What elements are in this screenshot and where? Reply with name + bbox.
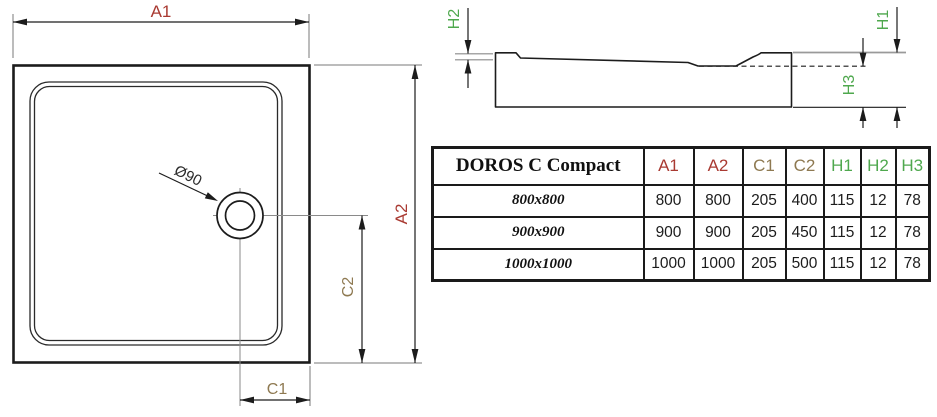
c2-label: C2 (340, 277, 357, 298)
a2-label: A2 (392, 204, 411, 225)
column-header-a1: A1 (644, 148, 694, 185)
value-h1: 115 (824, 217, 861, 249)
column-header-h2: H2 (861, 148, 896, 185)
value-h3: 78 (896, 217, 930, 249)
value-c2: 450 (786, 217, 824, 249)
value-h2: 12 (861, 249, 896, 281)
value-a2: 800 (694, 185, 743, 217)
side-view-drawing: H2 H1 H3 (446, 7, 906, 128)
value-c2: 500 (786, 249, 824, 281)
value-a2: 1000 (694, 249, 743, 281)
value-c1: 205 (743, 217, 786, 249)
h3-label: H3 (841, 75, 858, 96)
h2-arrowheads (465, 40, 472, 74)
technical-drawing-page: A1 Ø90 (0, 0, 937, 417)
table-title: DOROS C Compact (433, 148, 644, 185)
table-header-row: DOROS C Compact A1 A2 C1 C2 H1 H2 H3 (433, 148, 930, 185)
column-header-h1: H1 (824, 148, 861, 185)
column-header-c2: C2 (786, 148, 824, 185)
spec-table: DOROS C Compact A1 A2 C1 C2 H1 H2 H3 800… (431, 146, 931, 282)
value-a2: 900 (694, 217, 743, 249)
h1-label: H1 (875, 10, 892, 31)
table-row: 900x900 900 900 205 450 115 12 78 (433, 217, 930, 249)
value-a1: 800 (644, 185, 694, 217)
value-h1: 115 (824, 249, 861, 281)
table-row: 1000x1000 1000 1000 205 500 115 12 78 (433, 249, 930, 281)
value-a1: 900 (644, 217, 694, 249)
value-h3: 78 (896, 249, 930, 281)
h2-extension-ticks (455, 54, 493, 60)
size-label: 900x900 (433, 217, 644, 249)
c1-label: C1 (267, 381, 288, 398)
h2-label: H2 (446, 9, 463, 30)
h3-arrowheads (860, 53, 867, 121)
value-c1: 205 (743, 249, 786, 281)
value-c2: 400 (786, 185, 824, 217)
size-label: 1000x1000 (433, 249, 644, 281)
value-h2: 12 (861, 185, 896, 217)
drain-outer-circle (217, 193, 263, 239)
value-c1: 205 (743, 185, 786, 217)
column-header-c1: C1 (743, 148, 786, 185)
value-a1: 1000 (644, 249, 694, 281)
tray-profile-outline (496, 53, 792, 107)
value-h2: 12 (861, 217, 896, 249)
value-h3: 78 (896, 185, 930, 217)
tray-outer-edge (14, 66, 310, 363)
top-view-drawing: A1 Ø90 (13, 2, 422, 406)
h1-arrowheads (894, 39, 901, 121)
value-h1: 115 (824, 185, 861, 217)
size-label: 800x800 (433, 185, 644, 217)
column-header-a2: A2 (694, 148, 743, 185)
table-row: 800x800 800 800 205 400 115 12 78 (433, 185, 930, 217)
a1-label: A1 (151, 2, 172, 21)
column-header-h3: H3 (896, 148, 930, 185)
